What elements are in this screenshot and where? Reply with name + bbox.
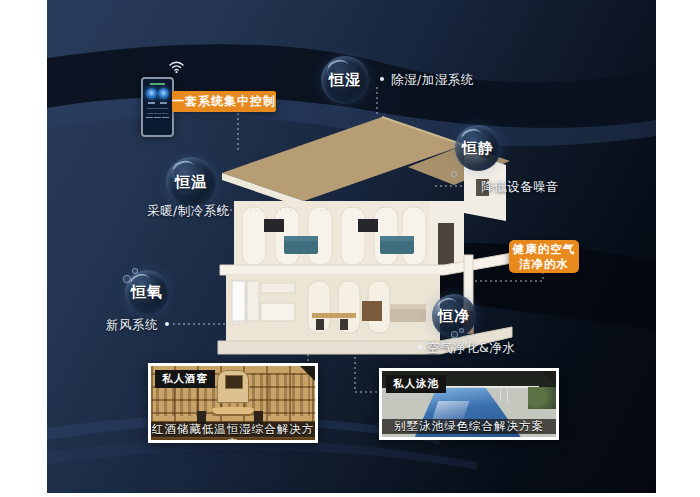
bubble-constant-quiet: 恒静 xyxy=(455,125,501,171)
bubble-label: 恒温 xyxy=(175,173,207,192)
infographic-page: { "features": [ { "name": "恒湿", "system"… xyxy=(0,0,700,497)
pool-caption: 别墅泳池绿色综合解决方案 xyxy=(382,419,556,434)
air-water-line2: 洁净的水 xyxy=(519,257,569,272)
bubble-label: 恒氧 xyxy=(131,283,163,302)
pool-ladder xyxy=(500,388,508,402)
wine-cellar-caption: 红酒储藏低温恒湿综合解决方案 xyxy=(151,422,315,437)
decor-bubble xyxy=(123,275,131,283)
wifi-icon xyxy=(168,59,185,73)
bubble-constant-temperature: 恒温 xyxy=(166,157,216,207)
photo-corner-ribbon xyxy=(541,371,556,386)
pool-plants xyxy=(528,387,556,409)
central-control-callout: 一套系统集中控制 xyxy=(172,91,276,112)
note-fresh-air-system: 新风系统 xyxy=(106,317,158,334)
decor-bubble xyxy=(451,331,458,338)
decor-bubble xyxy=(451,171,457,177)
poster-canvas: 一套系统集中控制 健康的空气 洁净的水 恒湿 除湿/加湿系统 恒静 降低设备噪音… xyxy=(47,0,656,493)
bubble-label: 恒净 xyxy=(438,307,470,326)
wine-table xyxy=(212,407,255,414)
wine-cellar-photo: 私人酒窖 红酒储藏低温恒湿综合解决方案 xyxy=(148,363,318,443)
pool-tag: 私人泳池 xyxy=(386,375,446,393)
decor-bubble xyxy=(459,328,464,333)
note-noise-reduction: 降低设备噪音 xyxy=(481,179,559,196)
pool-photo: 私人泳池 别墅泳池绿色综合解决方案 xyxy=(379,368,559,440)
wine-cellar-image: 私人酒窖 红酒储藏低温恒湿综合解决方案 xyxy=(151,366,315,440)
bubble-constant-oxygen: 恒氧 xyxy=(125,270,169,314)
bubble-label: 恒湿 xyxy=(329,71,361,90)
bubble-label: 恒静 xyxy=(462,139,494,158)
air-water-callout: 健康的空气 洁净的水 xyxy=(509,240,579,273)
central-control-label: 一套系统集中控制 xyxy=(172,93,276,110)
panel-dial-icon xyxy=(158,88,169,99)
decor-bubble xyxy=(132,268,138,274)
note-humidity-system: 除湿/加湿系统 xyxy=(391,72,474,89)
air-water-line1: 健康的空气 xyxy=(513,242,576,257)
pool-image: 私人泳池 别墅泳池绿色综合解决方案 xyxy=(382,371,556,437)
wine-cellar-tag: 私人酒窖 xyxy=(155,370,215,388)
photo-corner-ribbon xyxy=(300,366,315,381)
wine-picture-frame xyxy=(225,375,243,389)
panel-header-text xyxy=(150,83,165,85)
note-purification-system: 空气净化&净水 xyxy=(427,340,515,357)
bubble-constant-humidity: 恒湿 xyxy=(321,56,369,104)
panel-dial-icon xyxy=(146,88,157,99)
control-panel-device xyxy=(141,77,174,137)
note-heating-cooling-system: 采暖/制冷系统 xyxy=(147,203,230,220)
